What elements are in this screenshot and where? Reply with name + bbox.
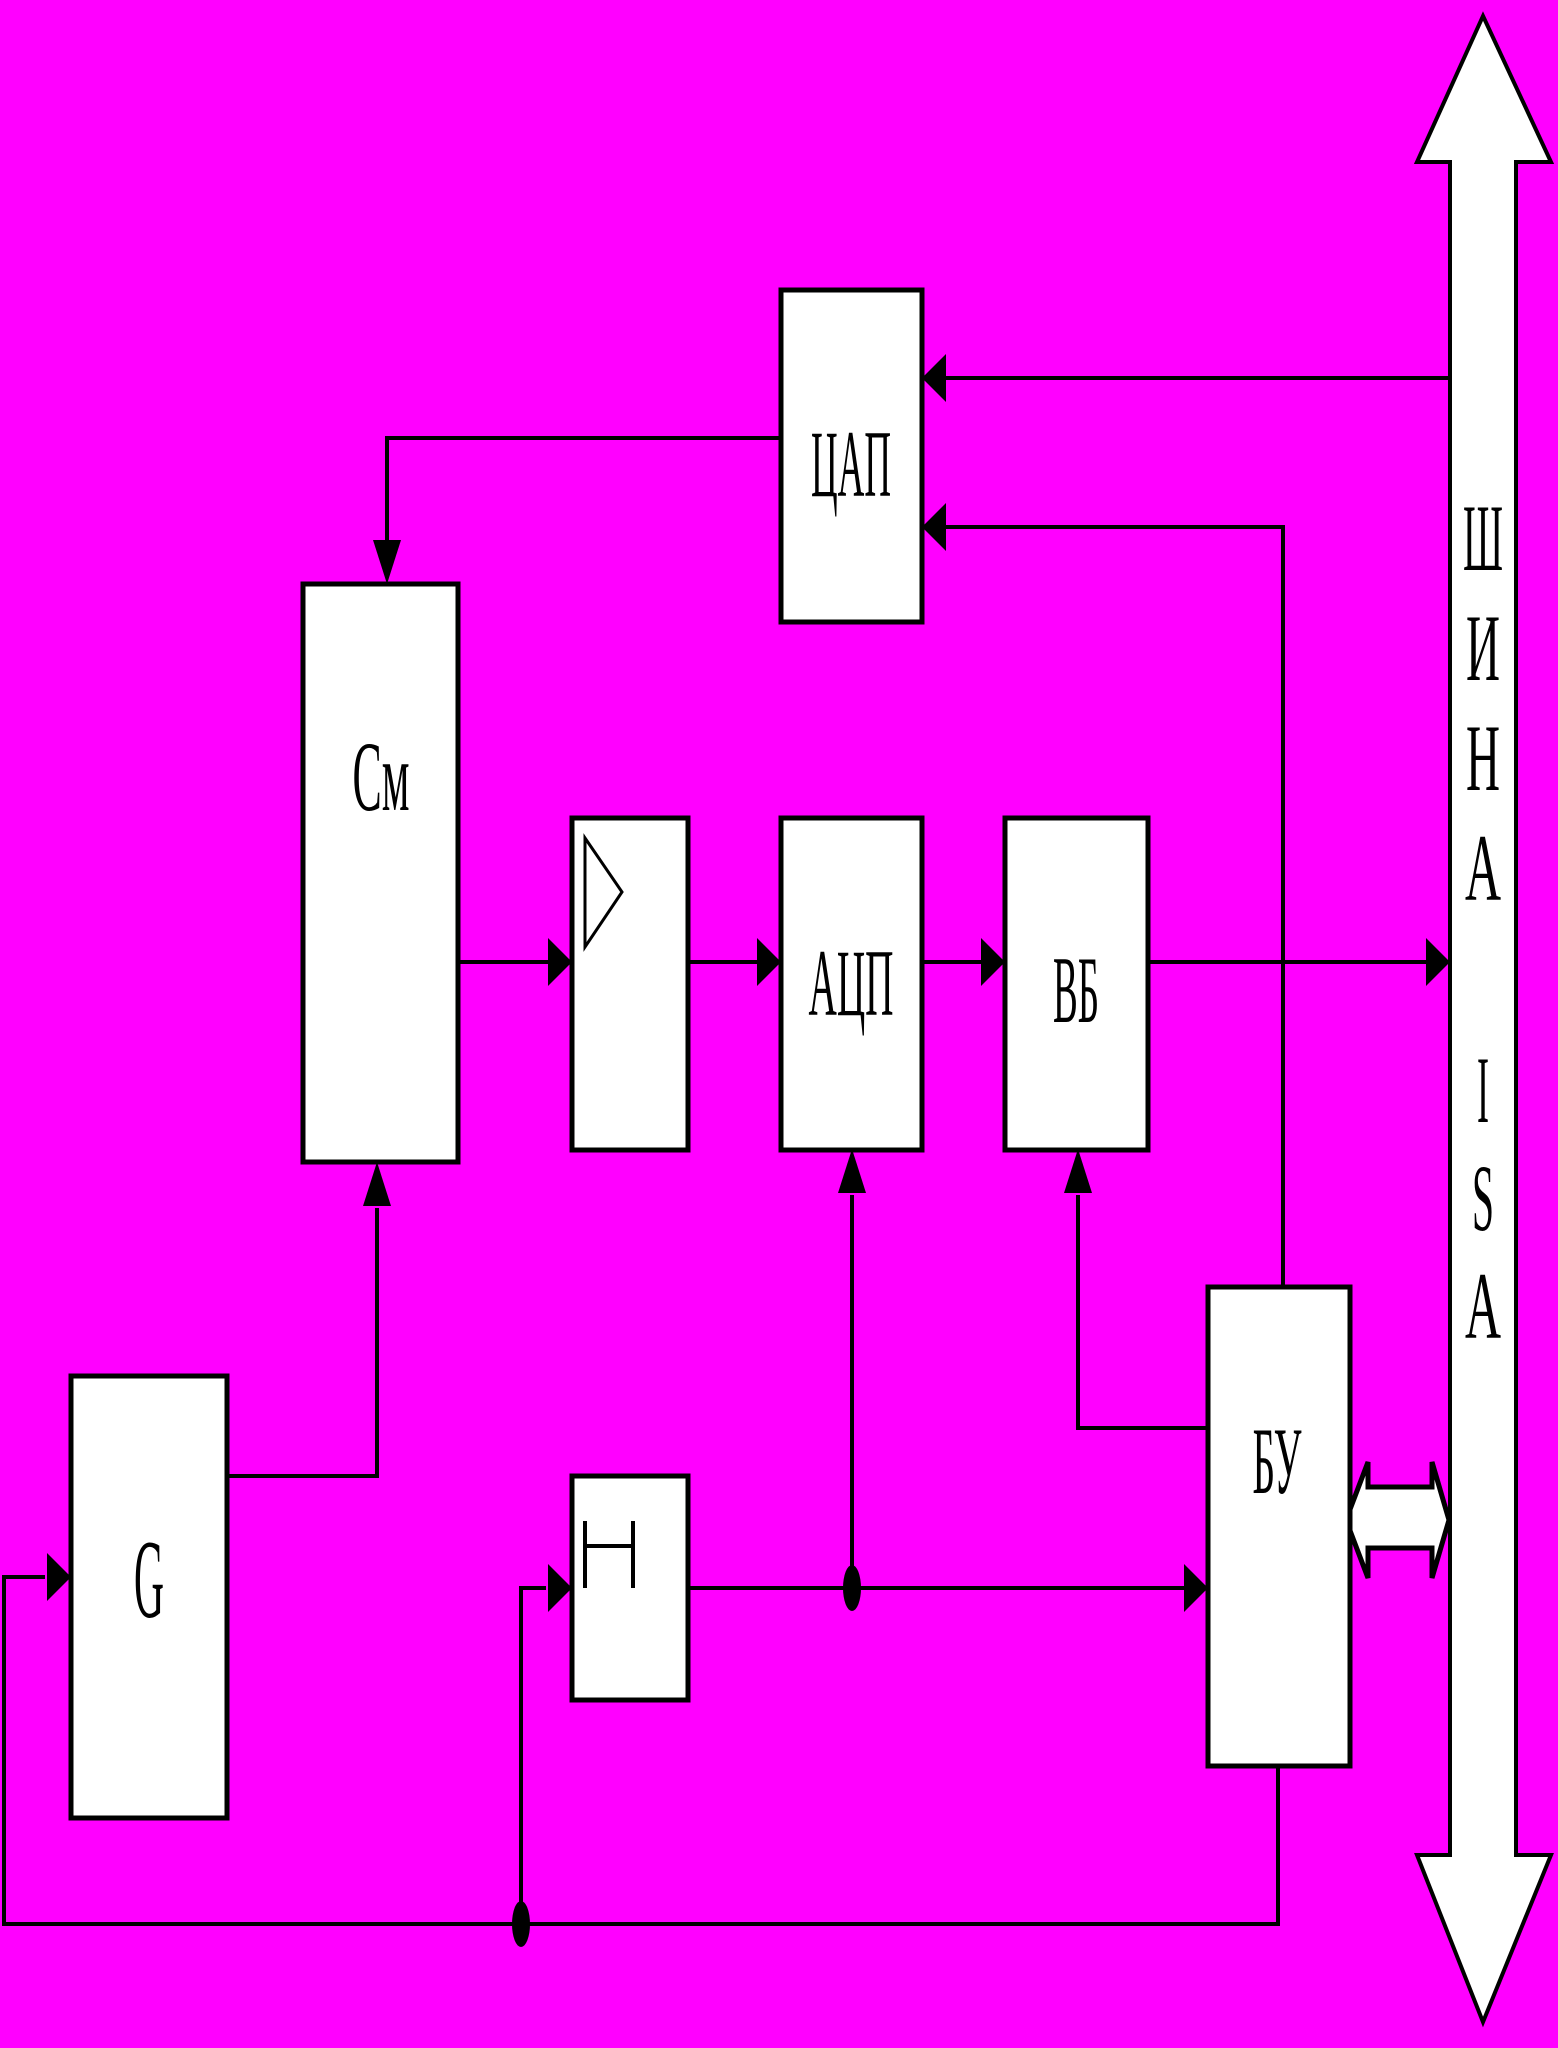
block-control-unit-label: БУ — [1253, 1408, 1302, 1514]
block-output-buffer-label: ВБ — [1053, 937, 1099, 1043]
block-output-buffer: ВБ — [1005, 818, 1148, 1150]
block-adc: АЦП — [781, 818, 922, 1150]
bus-letter: Ш — [1463, 485, 1503, 591]
junction-dot — [843, 1565, 861, 1611]
bus-letter: S — [1472, 1145, 1494, 1251]
diagram-canvas: Ш И Н А I S A ЦАП См АЦП ВБ БУ G — [0, 0, 1558, 2048]
block-adc-label: АЦП — [809, 930, 894, 1036]
block-control-unit: БУ — [1208, 1287, 1350, 1766]
block-dac-label: ЦАП — [811, 411, 891, 517]
block-generator: G — [71, 1376, 227, 1818]
junction-dot — [512, 1901, 530, 1947]
block-amplifier — [572, 818, 688, 1150]
block-dac: ЦАП — [781, 290, 922, 622]
block-mixer: См — [303, 584, 458, 1162]
block-mixer-label: См — [353, 721, 410, 832]
bus-letter: A — [1465, 1253, 1501, 1359]
bus-letter: И — [1466, 595, 1500, 701]
bus-letter: I — [1477, 1037, 1489, 1143]
block-diagram: Ш И Н А I S A ЦАП См АЦП ВБ БУ G — [0, 0, 1558, 2048]
bus-letter: А — [1465, 815, 1501, 921]
bus-letter: Н — [1466, 705, 1500, 811]
block-shaper — [572, 1476, 688, 1700]
block-generator-label: G — [134, 1518, 164, 1642]
